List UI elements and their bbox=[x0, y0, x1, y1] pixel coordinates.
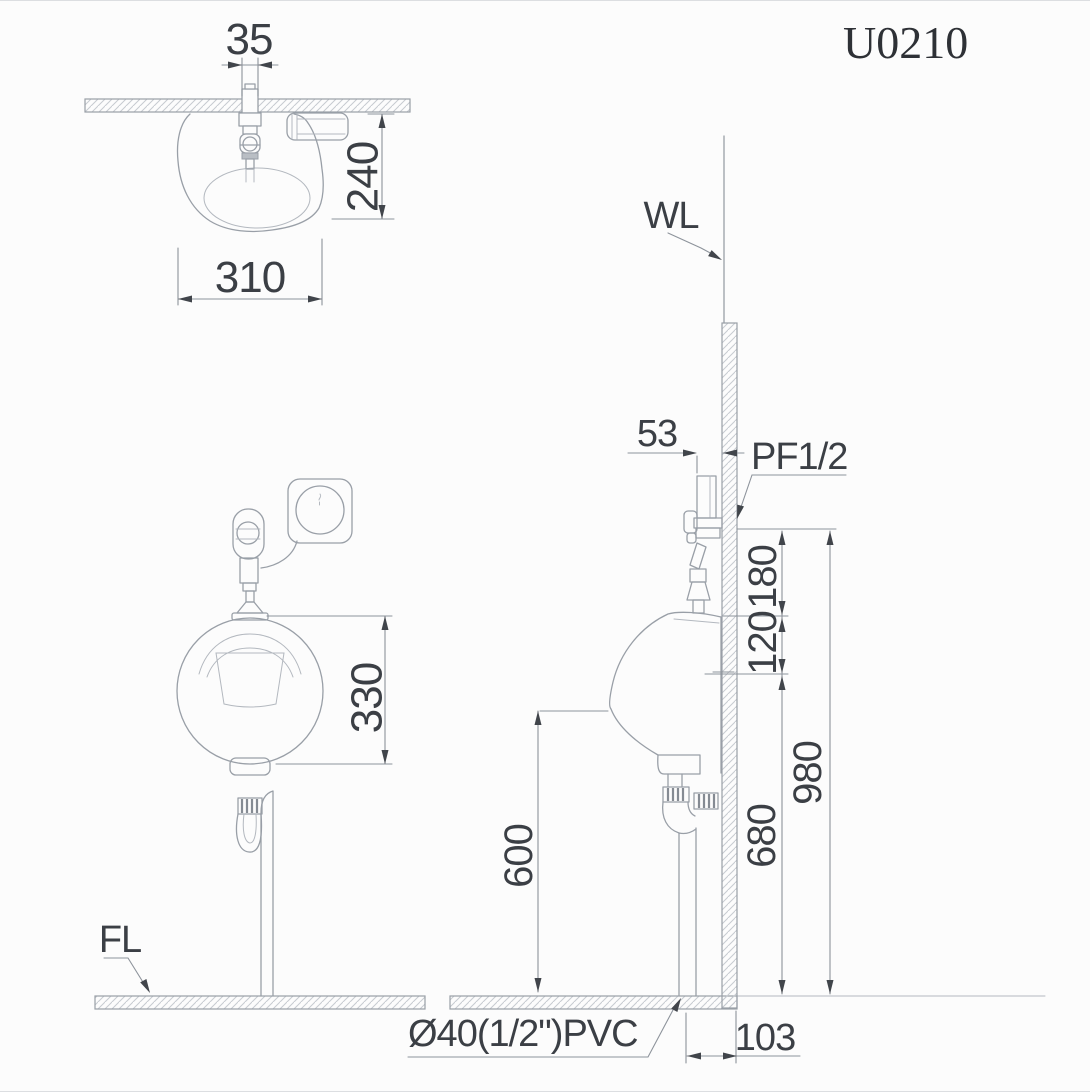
dim-980-label: 980 bbox=[786, 741, 830, 805]
sensor-eye-icon bbox=[319, 494, 321, 505]
floor-line-callout: FL bbox=[99, 919, 150, 993]
rim-arc-inner bbox=[207, 648, 293, 677]
floor-hatch-side bbox=[450, 996, 737, 1009]
model-number-label: U0210 bbox=[843, 17, 968, 68]
rim-arc-outer bbox=[199, 634, 301, 674]
dim-120-label: 120 bbox=[741, 611, 785, 675]
dim-310-label: 310 bbox=[215, 253, 285, 302]
floor-hatch-front bbox=[95, 996, 425, 1009]
drain-trap-side bbox=[663, 774, 718, 996]
dim-53-label: 53 bbox=[637, 413, 677, 455]
dim-width: 310 bbox=[178, 239, 322, 305]
urinal-installation-drawing: U0210 35 bbox=[0, 1, 1090, 1091]
dim-103-label: 103 bbox=[735, 1017, 795, 1059]
dim-600-label: 600 bbox=[497, 824, 541, 888]
dim-chain-180-120-680: 180 120 680 bbox=[740, 531, 786, 994]
side-view: WL bbox=[408, 136, 1045, 1063]
flush-valve-plan bbox=[239, 113, 261, 182]
technical-drawing-page: U0210 35 bbox=[0, 0, 1090, 1092]
flush-valve-front bbox=[232, 509, 268, 620]
sensor-cable bbox=[261, 541, 297, 568]
dim-240-label: 240 bbox=[338, 142, 387, 212]
bowl-ellipse-plan bbox=[204, 168, 310, 228]
wall-hatch-side bbox=[722, 323, 737, 1008]
bowl-opening bbox=[216, 653, 284, 707]
water-inlet-callout: PF1/2 bbox=[737, 436, 847, 519]
pf12-label: PF1/2 bbox=[751, 436, 847, 478]
front-view: 330 FL bbox=[95, 479, 425, 1009]
urinal-profile-side bbox=[610, 612, 721, 774]
dim-330-label: 330 bbox=[342, 663, 391, 733]
dim-bowl-height: 330 bbox=[267, 616, 392, 764]
flush-valve-side bbox=[684, 476, 722, 613]
dim-inlet-height: 980 bbox=[786, 531, 834, 994]
fl-label: FL bbox=[99, 919, 141, 961]
sensor-box bbox=[288, 479, 352, 543]
dim-680-label: 680 bbox=[740, 804, 784, 868]
dim-depth: 240 bbox=[332, 114, 394, 219]
dim-drain-to-wall: 103 bbox=[686, 1011, 800, 1063]
plan-view: 35 240 310 bbox=[85, 15, 410, 305]
dim-lip-height: 600 bbox=[497, 711, 608, 992]
wl-label: WL bbox=[644, 195, 699, 237]
wall-line-callout: WL bbox=[644, 195, 723, 260]
flush-box-plan bbox=[287, 113, 348, 140]
dim-180-label: 180 bbox=[741, 545, 785, 609]
spud-plan bbox=[242, 89, 258, 113]
dim-35-label: 35 bbox=[226, 15, 273, 64]
pvc-pipe-label: Ø40(1/2")PVC bbox=[408, 1013, 638, 1055]
urinal-bowl-front bbox=[177, 618, 323, 764]
drain-front bbox=[230, 758, 273, 996]
spud-cap-plan bbox=[245, 84, 255, 89]
